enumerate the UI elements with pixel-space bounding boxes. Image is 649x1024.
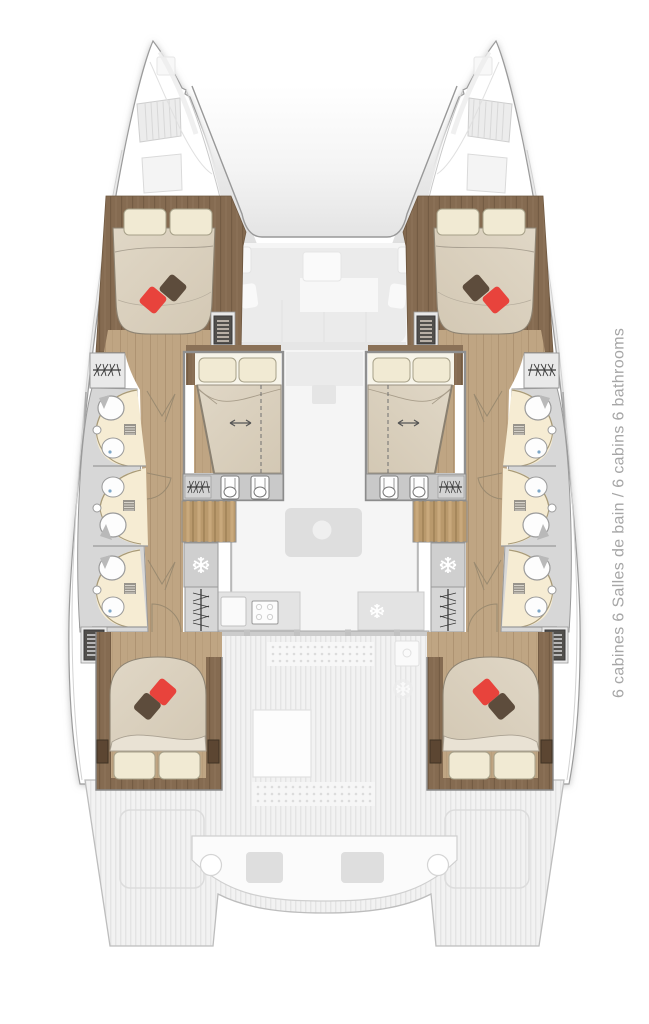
svg-text:6 cabines 6 Salles de bain / 6: 6 cabines 6 Salles de bain / 6 cabins 6 … — [611, 328, 628, 698]
